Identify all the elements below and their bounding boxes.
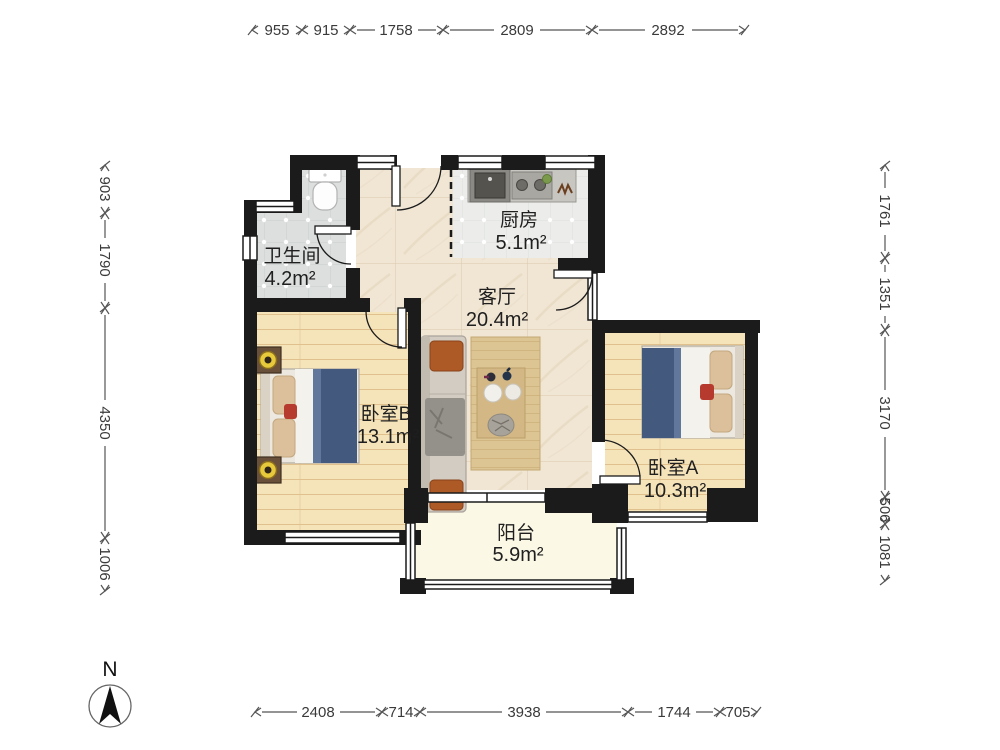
compass-needle-icon <box>99 686 121 724</box>
dim-right-1: 1761 <box>876 194 893 227</box>
bedroom-b-area: 13.1m² <box>357 426 420 448</box>
dim-left-1: 903 <box>96 176 113 201</box>
dim-top-3: 1758 <box>379 22 412 39</box>
bedroom-a-label: 卧室A <box>648 457 699 479</box>
red-cushion <box>700 384 714 400</box>
dim-bottom-3: 3938 <box>507 704 540 721</box>
bed-bedroom-b <box>261 369 359 463</box>
bedroom-a-area: 10.3m² <box>644 480 707 502</box>
window-living-right <box>588 273 597 320</box>
dim-left-2: 1790 <box>96 243 113 276</box>
wall-segment <box>502 155 545 170</box>
dim-top-1: 955 <box>264 22 289 39</box>
bathroom-area: 4.2m² <box>264 268 315 290</box>
dim-bottom-4: 1744 <box>657 704 690 721</box>
plate <box>505 384 521 400</box>
window-bedroom-a <box>628 512 707 522</box>
nightstand <box>255 347 281 373</box>
kitchen-area: 5.1m² <box>495 232 546 254</box>
window-bathroom-top <box>256 201 294 212</box>
wall-segment <box>745 320 758 512</box>
kitchen-sink <box>475 173 505 198</box>
toilet <box>309 169 341 210</box>
dim-right-3: 3170 <box>876 396 893 429</box>
sofa <box>421 336 466 512</box>
bed-bedroom-a <box>642 346 743 438</box>
bottle-icon <box>503 372 512 381</box>
pillow <box>273 419 295 457</box>
balcony-rail-right <box>617 528 626 580</box>
kitchen-counter <box>468 169 576 202</box>
window-bathroom-left <box>243 236 257 260</box>
wall-segment <box>592 320 760 333</box>
floor-plan-page: 卫生间 4.2m² 厨房 5.1m² 客厅 20.4m² 卧室B 13.1m² … <box>0 0 1000 750</box>
bathroom-label: 卫生间 <box>263 245 320 267</box>
window-kitchen-2 <box>545 156 595 169</box>
plate <box>484 384 502 402</box>
kitchen-label: 厨房 <box>500 209 538 231</box>
pillow <box>710 394 732 432</box>
dim-bottom-5: 705 <box>725 704 750 721</box>
dim-top-5: 2892 <box>651 22 684 39</box>
wall-segment <box>592 320 605 442</box>
wall-segment <box>707 488 758 522</box>
dim-top-2: 915 <box>313 22 338 39</box>
coffee-table-rug <box>471 337 540 470</box>
dim-top-4: 2809 <box>500 22 533 39</box>
window-entry <box>357 156 395 169</box>
floor-plan: 卫生间 4.2m² 厨房 5.1m² 客厅 20.4m² 卧室B 13.1m² … <box>0 0 1000 750</box>
dim-right-2: 1351 <box>876 277 893 310</box>
window-kitchen <box>458 156 502 169</box>
stone-decor <box>488 414 514 436</box>
wall-segment <box>588 155 605 273</box>
red-cushion <box>284 404 297 419</box>
nightstand <box>255 457 281 483</box>
compass-north-label: N <box>102 658 117 681</box>
compass: N <box>89 658 131 727</box>
dim-bottom-2: 714 <box>388 704 413 721</box>
dim-right-5: 1081 <box>876 535 893 568</box>
living-room-label: 客厅 <box>478 286 516 308</box>
dim-bottom-1: 2408 <box>301 704 334 721</box>
dim-left-3: 4350 <box>96 406 113 439</box>
dimensions-left <box>100 161 110 595</box>
window-bedroom-b <box>285 532 400 543</box>
pillow <box>710 351 732 389</box>
balcony-label: 阳台 <box>497 522 535 544</box>
sofa-throw <box>425 398 465 456</box>
dim-right-4: 506 <box>876 497 893 522</box>
wall-segment <box>545 488 600 513</box>
wall-segment <box>404 488 428 523</box>
balcony-area: 5.9m² <box>492 544 543 566</box>
wall-segment <box>441 155 458 170</box>
wall-segment <box>244 298 370 312</box>
plant-icon <box>543 175 552 184</box>
dim-left-4: 1006 <box>96 547 113 580</box>
sofa-pillow <box>430 341 463 371</box>
balcony-rail-left <box>406 523 415 580</box>
living-room-area: 20.4m² <box>466 309 529 331</box>
balcony-rail-bottom <box>424 580 612 589</box>
bedroom-b-label: 卧室B <box>361 403 412 425</box>
balcony-sliding-door <box>428 493 545 502</box>
